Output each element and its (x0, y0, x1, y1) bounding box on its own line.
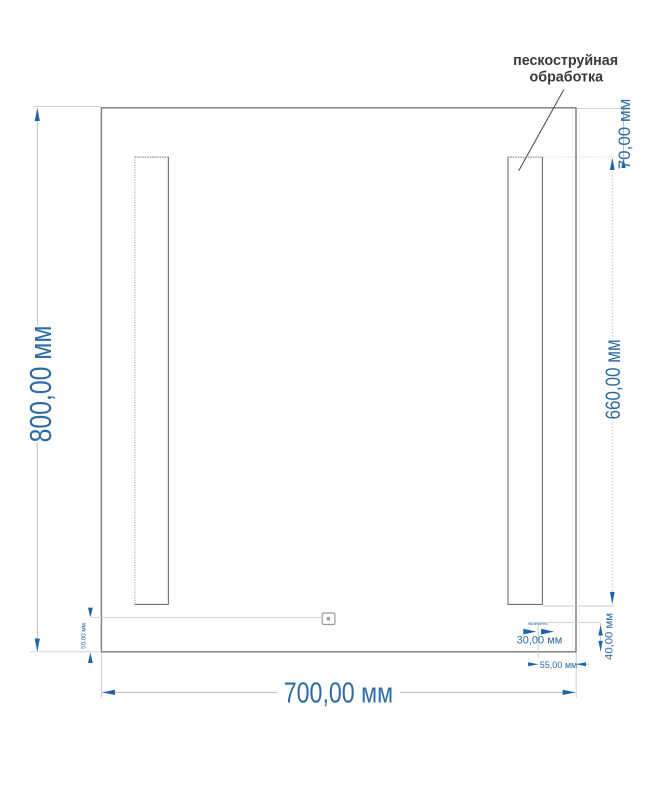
svg-text:55,00 мм: 55,00 мм (540, 660, 577, 670)
svg-text:70,00 мм: 70,00 мм (615, 99, 634, 170)
svg-text:обработка: обработка (530, 69, 605, 85)
svg-text:660,00 мм: 660,00 мм (602, 339, 625, 419)
svg-text:800,00 мм: 800,00 мм (23, 326, 57, 443)
svg-text:30,00 мм: 30,00 мм (517, 635, 563, 647)
svg-text:700,00 мм: 700,00 мм (284, 676, 393, 709)
svg-text:выключатель: выключатель (528, 621, 548, 626)
svg-text:40,00 мм: 40,00 мм (603, 613, 615, 660)
svg-text:пескоструйная: пескоструйная (513, 53, 618, 69)
svg-text:50,00 мм: 50,00 мм (81, 623, 88, 649)
